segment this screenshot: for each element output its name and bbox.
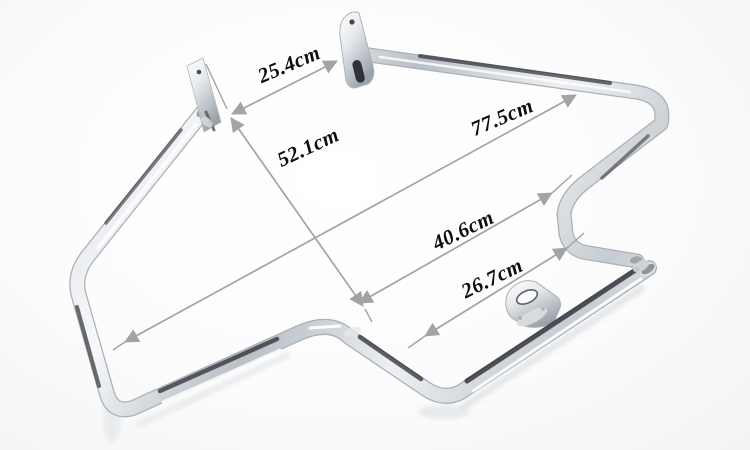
tab-bolt-hole [349,19,354,24]
tab-bolt-hole [197,70,202,75]
tube-upper-right [362,54,662,264]
tube-main [77,103,657,410]
chrome-streak [160,339,277,391]
dim-arrow-25-4 [232,61,337,114]
product-photo: 25.4cm 52.1cm 77.5cm 40.6cm 26.7cm [0,0,750,450]
chrome-streak [467,269,637,381]
dim-arrow-52-1 [231,118,363,306]
chrome-streak [106,130,181,223]
chrome-highlight [98,124,196,248]
chrome-highlight [473,279,641,391]
engine-guard-illustration [0,0,750,450]
chrome-highlight [380,57,630,92]
chrome-highlight [163,350,280,402]
surface-shadows [103,288,642,442]
chrome-highlight [310,326,340,328]
mount-tab-top-center [340,12,374,88]
